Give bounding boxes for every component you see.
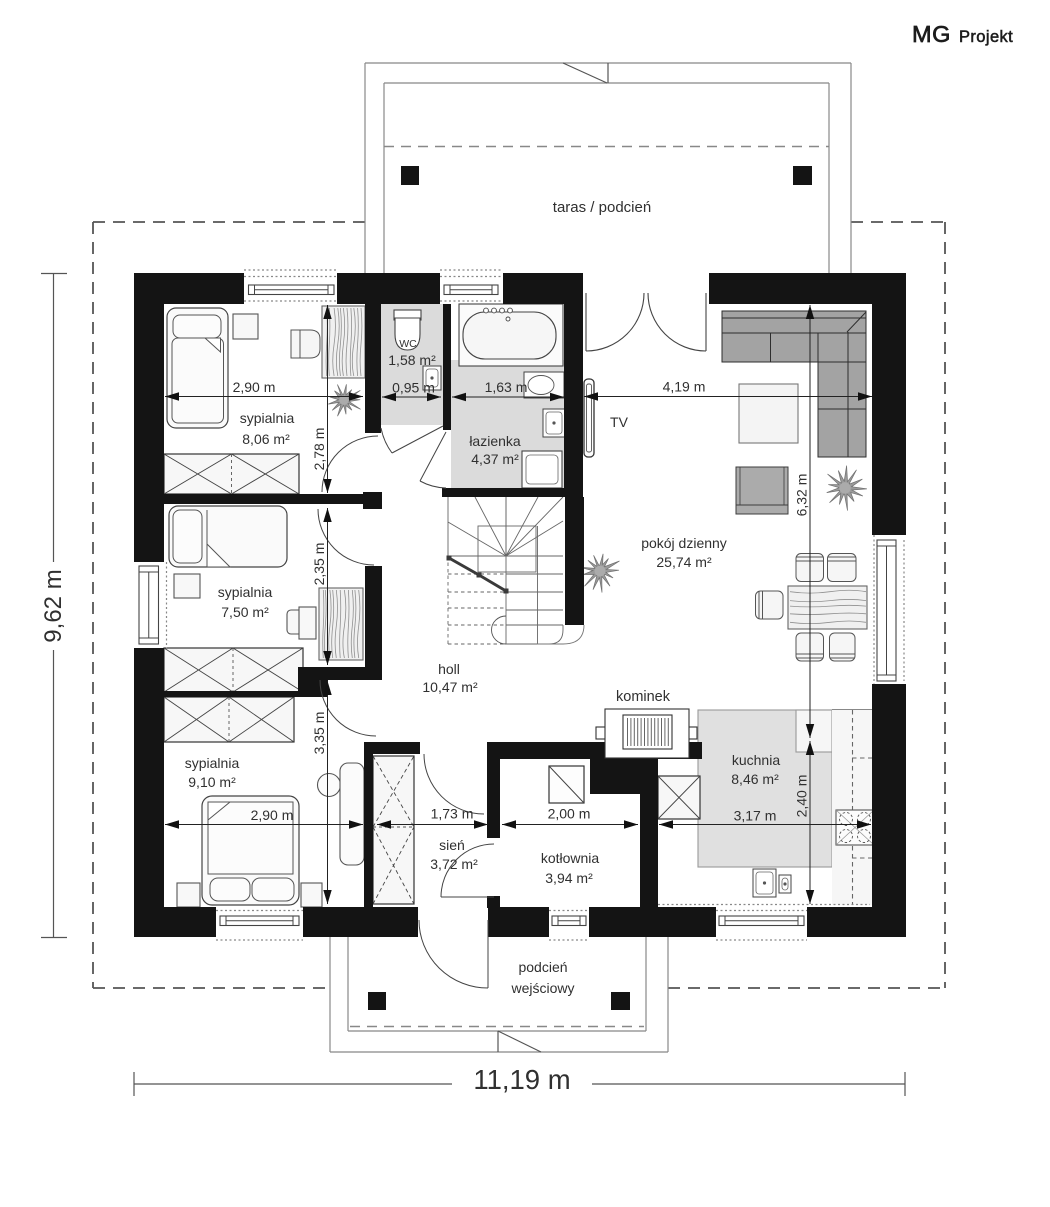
- svg-text:sypialnia: sypialnia: [240, 410, 295, 426]
- svg-text:2,90 m: 2,90 m: [233, 379, 276, 395]
- svg-text:pokój dzienny: pokój dzienny: [641, 535, 727, 551]
- svg-text:4,19 m: 4,19 m: [663, 379, 706, 395]
- svg-text:2,40 m: 2,40 m: [794, 775, 810, 818]
- svg-text:25,74 m²: 25,74 m²: [656, 554, 712, 570]
- svg-text:9,62 m: 9,62 m: [40, 569, 67, 642]
- svg-text:3,35 m: 3,35 m: [311, 712, 327, 755]
- svg-text:2,00 m: 2,00 m: [548, 806, 591, 822]
- svg-text:1,73 m: 1,73 m: [431, 806, 474, 822]
- svg-text:8,06 m²: 8,06 m²: [242, 431, 290, 447]
- svg-text:sypialnia: sypialnia: [218, 584, 273, 600]
- svg-text:1,58 m²: 1,58 m²: [388, 352, 436, 368]
- svg-text:kominek: kominek: [616, 689, 671, 705]
- svg-text:10,47 m²: 10,47 m²: [422, 679, 478, 695]
- svg-text:podcień: podcień: [518, 959, 567, 975]
- svg-text:holl: holl: [438, 661, 460, 677]
- svg-text:7,50 m²: 7,50 m²: [221, 604, 269, 620]
- svg-text:sień: sień: [439, 837, 465, 853]
- svg-text:kotłownia: kotłownia: [541, 850, 600, 866]
- svg-text:3,72 m²: 3,72 m²: [430, 856, 478, 872]
- svg-text:taras / podcień: taras / podcień: [553, 199, 651, 216]
- svg-text:3,94 m²: 3,94 m²: [545, 870, 593, 886]
- svg-text:kuchnia: kuchnia: [732, 752, 780, 768]
- svg-text:3,17 m: 3,17 m: [734, 808, 777, 824]
- svg-text:8,46 m²: 8,46 m²: [731, 771, 779, 787]
- svg-text:11,19 m: 11,19 m: [473, 1064, 570, 1095]
- svg-text:wejściowy: wejściowy: [510, 980, 574, 996]
- svg-text:TV: TV: [610, 414, 629, 430]
- svg-text:0,95 m: 0,95 m: [392, 380, 435, 396]
- svg-text:2,90 m: 2,90 m: [251, 807, 294, 823]
- svg-text:2,78 m: 2,78 m: [311, 428, 327, 471]
- svg-text:1,63 m: 1,63 m: [485, 379, 528, 395]
- svg-text:6,32 m: 6,32 m: [794, 474, 810, 517]
- svg-text:9,10 m²: 9,10 m²: [188, 774, 236, 790]
- svg-text:4,37 m²: 4,37 m²: [471, 451, 519, 467]
- svg-text:WC: WC: [399, 338, 417, 350]
- svg-text:2,35 m: 2,35 m: [311, 543, 327, 586]
- svg-text:Projekt: Projekt: [959, 28, 1013, 46]
- svg-text:sypialnia: sypialnia: [185, 755, 240, 771]
- svg-text:łazienka: łazienka: [469, 433, 521, 449]
- svg-text:MG: MG: [912, 21, 951, 47]
